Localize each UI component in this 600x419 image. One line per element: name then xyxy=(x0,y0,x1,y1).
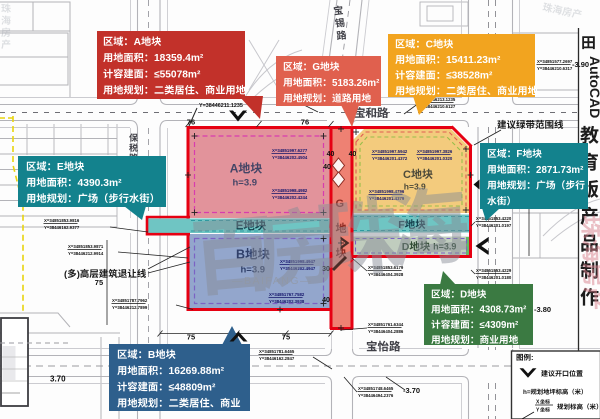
svg-text:Y=38446202.3938: Y=38446202.3938 xyxy=(269,299,305,304)
svg-text:Y=38446212.7899: Y=38446212.7899 xyxy=(112,305,148,310)
svg-text:≤38528m²: ≤38528m² xyxy=(446,71,493,82)
svg-text:15411.23m²: 15411.23m² xyxy=(446,55,501,66)
svg-text:X=34851767.7582: X=34851767.7582 xyxy=(269,292,305,297)
svg-text:75: 75 xyxy=(95,278,103,287)
svg-text:16269.88m²: 16269.88m² xyxy=(169,366,225,377)
svg-text:≤48809m²: ≤48809m² xyxy=(169,382,216,393)
svg-text:D: D xyxy=(460,290,467,301)
svg-text:Y=38446201.4372: Y=38446201.4372 xyxy=(372,156,408,161)
svg-text:Y=38446494.2376: Y=38446494.2376 xyxy=(358,393,394,398)
svg-text:Y=38446212.9914: Y=38446212.9914 xyxy=(68,251,104,256)
svg-text:Y=38446202.4504: Y=38446202.4504 xyxy=(272,155,308,160)
svg-text:≤4309m²: ≤4309m² xyxy=(480,320,519,331)
svg-text:-3.70: -3.70 xyxy=(403,386,420,395)
svg-text:40: 40 xyxy=(327,151,335,158)
svg-text:40: 40 xyxy=(349,151,357,158)
svg-text:X=34851787.7962: X=34851787.7962 xyxy=(112,298,148,303)
svg-text:AutoCAD: AutoCAD xyxy=(587,56,600,118)
svg-text:X=34851577.2697: X=34851577.2697 xyxy=(537,59,573,64)
svg-text:h=3.9: h=3.9 xyxy=(233,178,258,189)
svg-text:40: 40 xyxy=(323,164,331,171)
svg-text:A: A xyxy=(230,162,239,176)
svg-text:C: C xyxy=(426,40,434,51)
svg-text:75: 75 xyxy=(282,333,290,342)
svg-text:40: 40 xyxy=(322,297,330,304)
svg-text:E: E xyxy=(57,162,64,173)
svg-text:X=34851781.6465: X=34851781.6465 xyxy=(259,349,295,354)
svg-text:X=34851853.4229: X=34851853.4229 xyxy=(476,268,512,273)
svg-text:—BAIFANG—: —BAIFANG— xyxy=(232,275,312,287)
svg-text::: : xyxy=(531,353,534,362)
svg-text:4390.3m²: 4390.3m² xyxy=(78,178,123,189)
svg-text:A: A xyxy=(134,37,142,48)
svg-text:Y=38446201.0197: Y=38446201.0197 xyxy=(476,223,512,228)
svg-text:h=: h= xyxy=(523,389,531,396)
svg-text:3.70: 3.70 xyxy=(50,375,66,384)
svg-text:-3.80: -3.80 xyxy=(534,305,551,314)
svg-text:Y=38446162.9377: Y=38446162.9377 xyxy=(44,225,80,230)
svg-text:C: C xyxy=(403,169,411,181)
svg-text:X=34851997.5942: X=34851997.5942 xyxy=(372,149,408,154)
svg-text:Y=38446404.2886: Y=38446404.2886 xyxy=(368,329,404,334)
svg-text:75: 75 xyxy=(187,333,195,342)
svg-text:X=34851998.4982: X=34851998.4982 xyxy=(272,188,308,193)
svg-text:Y=38446210.6317: Y=38446210.6317 xyxy=(537,66,573,71)
svg-text:Y=38446201.0320: Y=38446201.0320 xyxy=(417,156,453,161)
svg-text:Y=38446162.2847: Y=38446162.2847 xyxy=(259,356,295,361)
svg-text:X=34851997.6277: X=34851997.6277 xyxy=(272,148,308,153)
svg-text:Y=38446202.4244: Y=38446202.4244 xyxy=(272,195,308,200)
svg-text:Y=38446211.1235: Y=38446211.1235 xyxy=(199,103,243,109)
svg-text:18359.4m²: 18359.4m² xyxy=(154,53,204,64)
svg-text:5183.26m²: 5183.26m² xyxy=(332,78,380,89)
svg-text:4308.73m²: 4308.73m² xyxy=(480,305,528,316)
svg-text:X=34851853.9816: X=34851853.9816 xyxy=(44,218,80,223)
svg-text:2871.73m²: 2871.73m² xyxy=(536,165,584,176)
svg-text:Y=38446404.3928: Y=38446404.3928 xyxy=(368,272,404,277)
svg-text:-3.90: -3.90 xyxy=(572,60,589,69)
svg-text:76: 76 xyxy=(301,118,309,127)
svg-text:): ) xyxy=(77,269,80,280)
svg-text:≤55078m²: ≤55078m² xyxy=(154,69,201,80)
svg-text:X=34851761.6344: X=34851761.6344 xyxy=(368,322,404,327)
svg-text:X=34851748.6465: X=34851748.6465 xyxy=(358,386,394,391)
svg-text:B: B xyxy=(148,350,155,361)
svg-text:Y=38446201.0180: Y=38446201.0180 xyxy=(476,275,512,280)
svg-text:G: G xyxy=(312,62,320,73)
svg-text:X=34851853.4220: X=34851853.4220 xyxy=(476,216,512,221)
svg-text:F: F xyxy=(516,149,522,160)
svg-text:X=34851997.3826: X=34851997.3826 xyxy=(417,149,453,154)
svg-text:X=34851853.9871: X=34851853.9871 xyxy=(68,244,104,249)
